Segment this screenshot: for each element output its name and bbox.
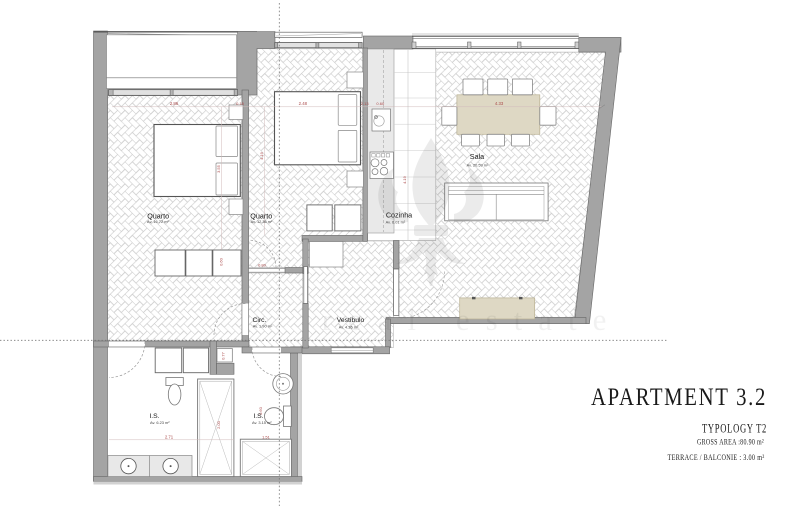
svg-text:TYPOLOGY T2: TYPOLOGY T2 xyxy=(702,421,767,435)
svg-text:2.48: 2.48 xyxy=(299,101,308,106)
svg-text:Av. 3.15 m²: Av. 3.15 m² xyxy=(252,420,272,425)
svg-text:4.19: 4.19 xyxy=(259,151,264,160)
svg-text:Av. 1.90 m²: Av. 1.90 m² xyxy=(253,324,273,329)
svg-text:4.33: 4.33 xyxy=(495,101,504,106)
svg-text:TERRACE / BALCONIE : 3.00 m²: TERRACE / BALCONIE : 3.00 m² xyxy=(668,453,765,462)
svg-text:4.19: 4.19 xyxy=(402,175,407,184)
svg-text:2.71: 2.71 xyxy=(165,434,174,439)
svg-text:Av. 12.36 m²: Av. 12.36 m² xyxy=(251,219,273,224)
svg-text:APARTMENT 3.2: APARTMENT 3.2 xyxy=(591,384,767,411)
svg-text:Av. 6.23 m²: Av. 6.23 m² xyxy=(150,420,170,425)
svg-text:Sala: Sala xyxy=(470,152,484,161)
svg-text:3.55: 3.55 xyxy=(216,164,221,173)
svg-text:2.13: 2.13 xyxy=(361,101,370,106)
svg-text:1.51: 1.51 xyxy=(262,434,271,439)
svg-text:I.S.: I.S. xyxy=(149,413,159,420)
svg-text:0.77: 0.77 xyxy=(221,351,226,360)
svg-text:2.00: 2.00 xyxy=(216,420,221,429)
svg-text:0.15: 0.15 xyxy=(236,101,245,106)
svg-text:0.80: 0.80 xyxy=(258,262,267,267)
svg-text:Av. 16.72 m²: Av. 16.72 m² xyxy=(147,219,169,224)
svg-text:real estate: real estate xyxy=(322,302,623,337)
svg-text:2.86: 2.86 xyxy=(170,101,179,106)
svg-text:0.60: 0.60 xyxy=(376,101,385,106)
svg-text:I.S.: I.S. xyxy=(253,413,263,420)
svg-text:Av. 20.59 m²: Av. 20.59 m² xyxy=(467,162,489,167)
svg-text:0.60: 0.60 xyxy=(218,257,223,266)
svg-text:GROSS AREA :80.90 m²: GROSS AREA :80.90 m² xyxy=(697,438,764,447)
